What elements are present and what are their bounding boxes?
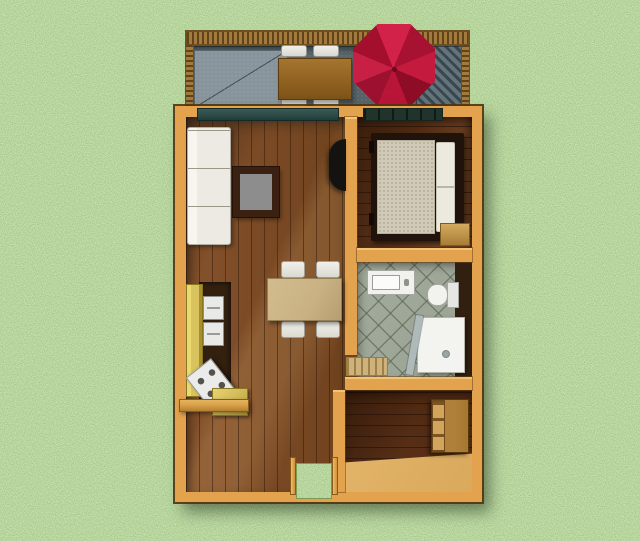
deck-light-pad [194, 50, 288, 108]
bed-post [369, 213, 374, 225]
toilet [427, 282, 459, 308]
patio-chair [313, 45, 339, 57]
deck-patio [185, 30, 470, 108]
floor-plan-scene [0, 0, 640, 541]
dining-chair [316, 321, 340, 338]
dining-chair [316, 261, 340, 278]
corner-shower [417, 317, 465, 373]
bed-foot-bench [440, 223, 470, 246]
built-in-oven [203, 296, 224, 320]
bed-post [369, 141, 374, 153]
dining-chair [281, 321, 305, 338]
dresser [431, 399, 469, 453]
glass-door-to-deck [197, 108, 339, 121]
coffee-table [233, 167, 279, 217]
entry-door-post [290, 457, 296, 495]
bathroom-mat [346, 357, 388, 376]
deck-railing-right [461, 44, 470, 108]
built-in-microwave [203, 322, 224, 346]
entry-grass-mat [296, 463, 332, 499]
wall-living-bedroom [345, 117, 357, 355]
pillows [436, 142, 455, 232]
toilet-bowl [427, 284, 448, 306]
white-sofa [187, 127, 231, 245]
deck-railing-left [185, 44, 194, 108]
entry-grass-texture [297, 464, 331, 498]
wall-bathroom-backroom [345, 377, 472, 390]
dining-table [267, 278, 342, 321]
vanity-sink [367, 270, 415, 295]
kitchen-shelf [179, 399, 249, 412]
back-room-light-floor [345, 452, 472, 492]
mattress [377, 140, 435, 234]
entry-door-post [332, 457, 338, 495]
house-outline [175, 106, 482, 502]
patio-table [278, 58, 352, 100]
bedroom-window [363, 108, 443, 121]
toilet-tank [447, 282, 459, 308]
patio-chair [281, 45, 307, 57]
wall-bedroom-bathroom [357, 248, 472, 262]
wall-tv [329, 139, 346, 191]
dining-chair [281, 261, 305, 278]
